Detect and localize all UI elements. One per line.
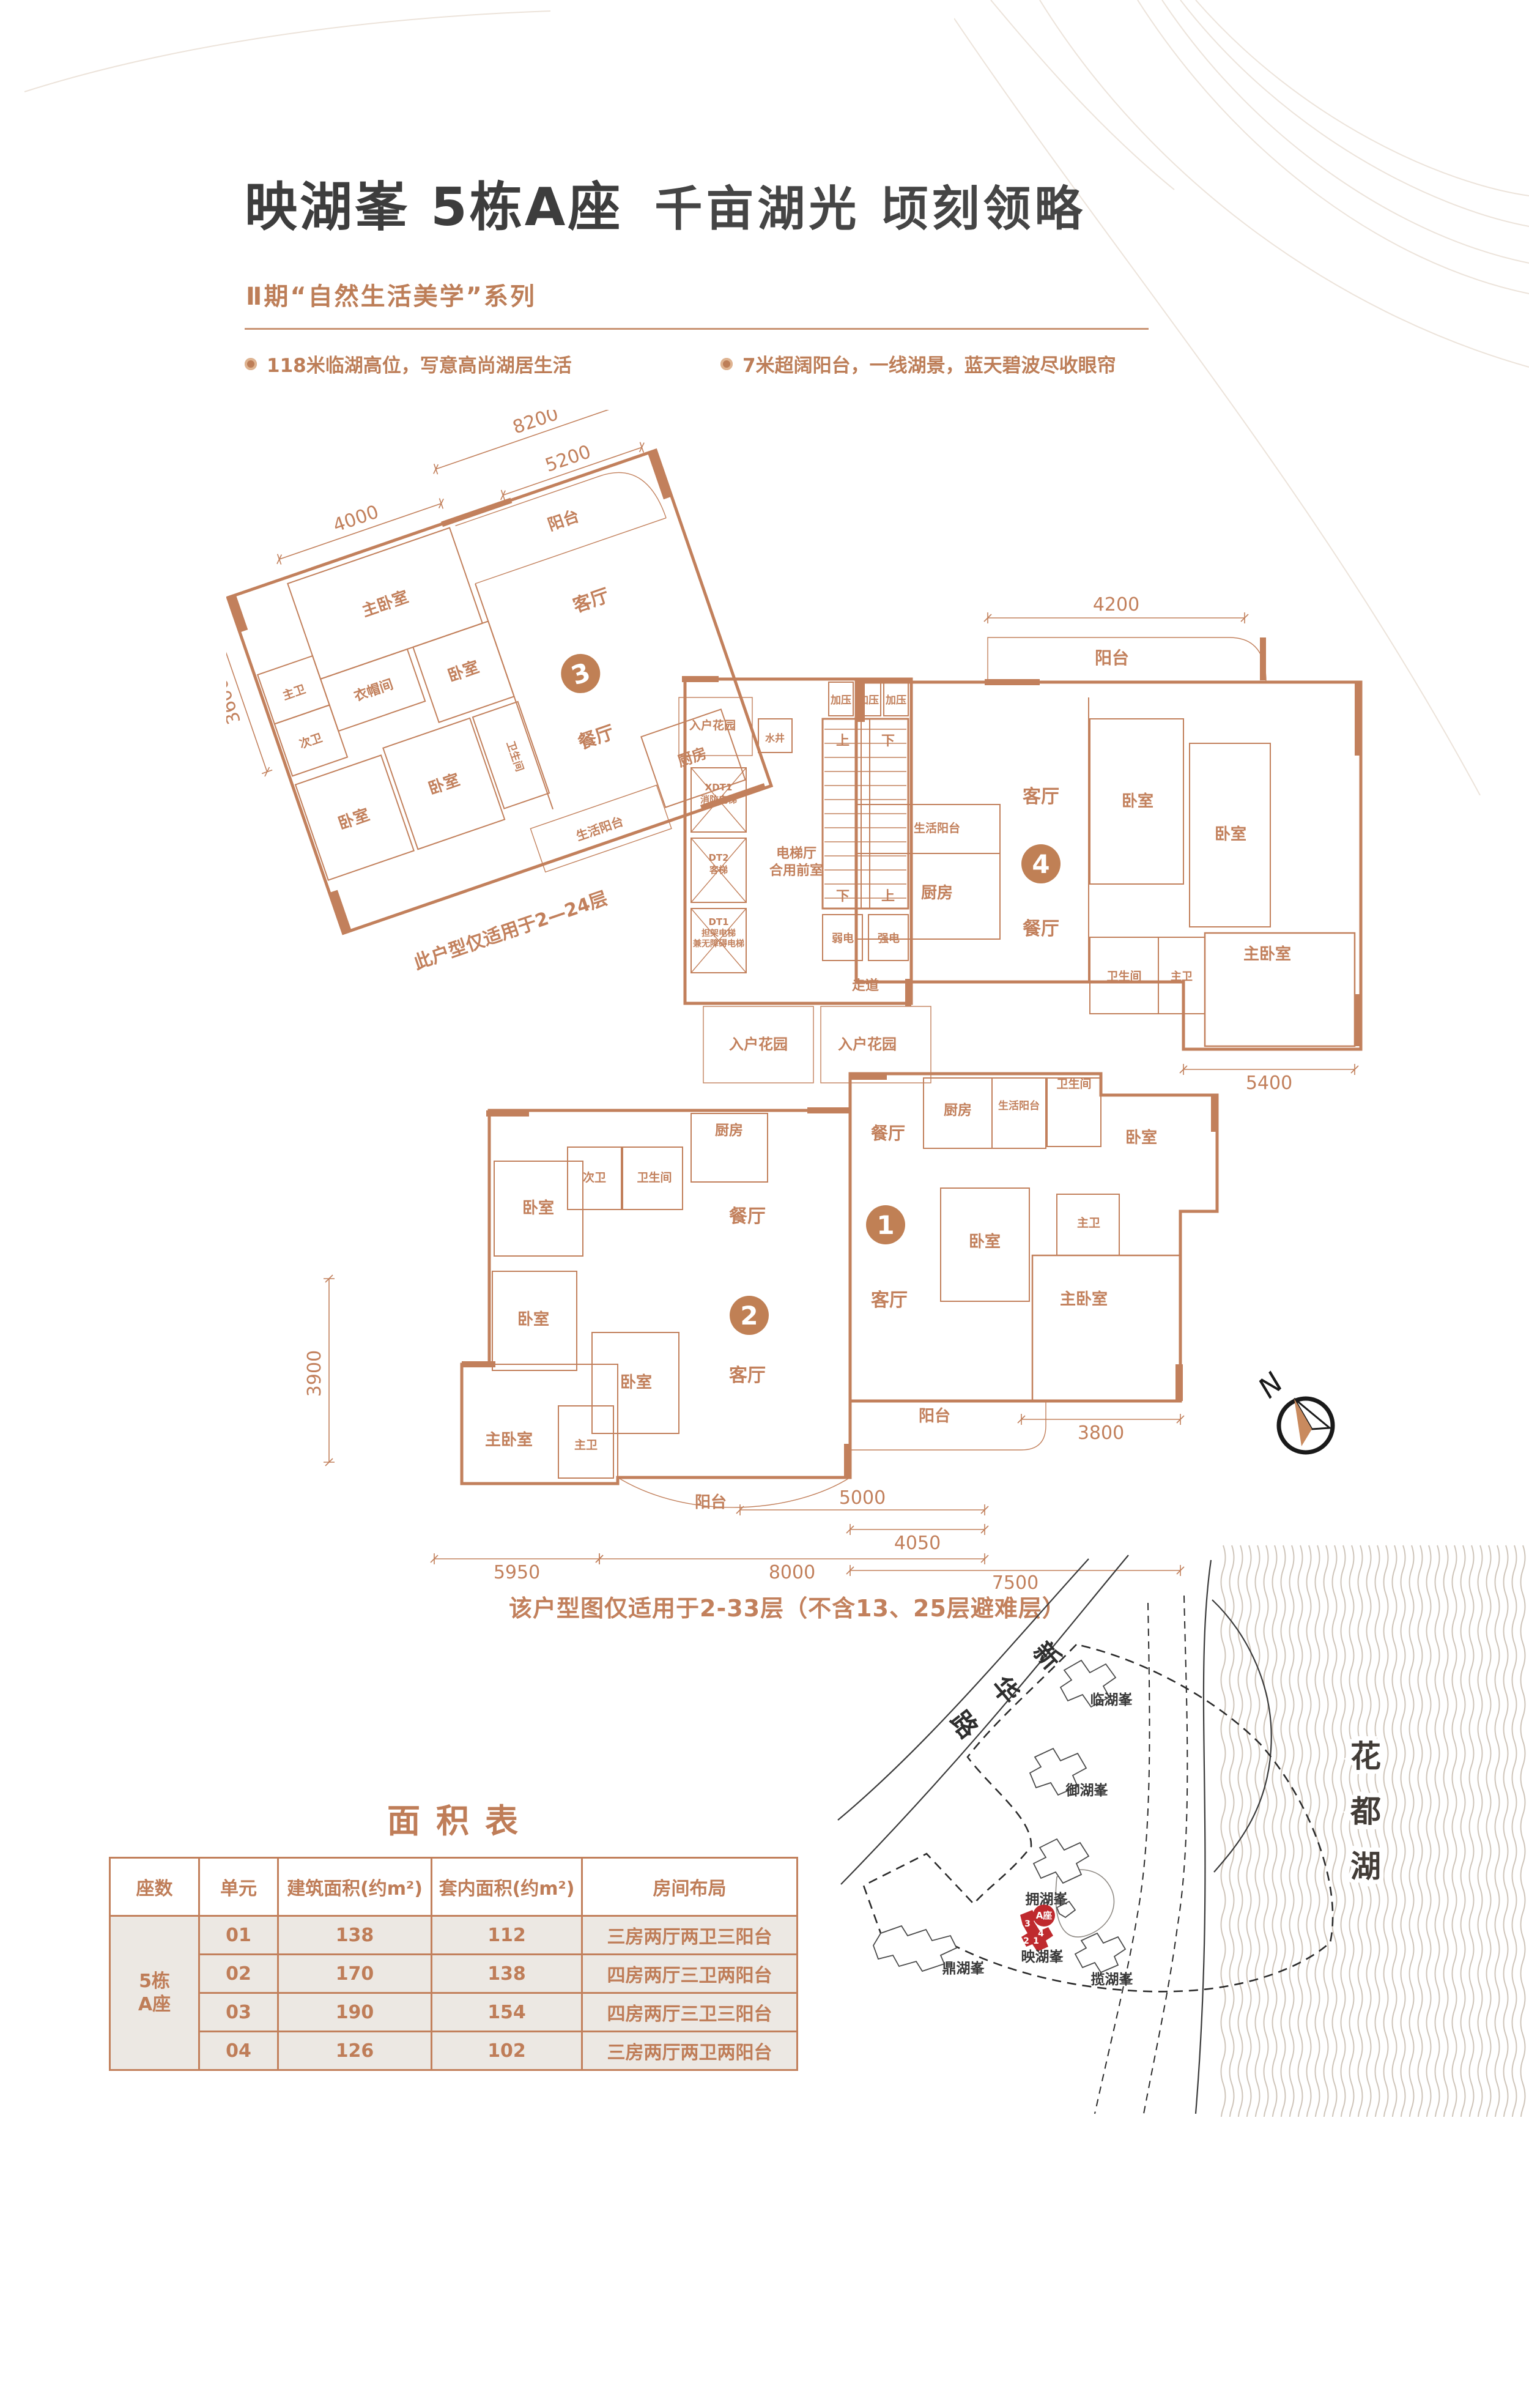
road-name-char: 路 [944,1705,984,1744]
table-row: 5栋 A座 01 138 112 三房两厅两卫三阳台 [110,1916,798,1955]
room-label: 主卫 [1077,1216,1100,1230]
dimension-label: 4000 [330,501,382,537]
estate-label: 鼎湖峯 [942,1961,985,1977]
layout-cell: 四房两厅三卫三阳台 [582,1993,798,2032]
room-label: 餐厅 [871,1123,905,1143]
col-header-layout: 房间布局 [582,1858,798,1916]
room-label: 担架电梯 [702,928,736,938]
room-label: 厨房 [921,884,953,902]
room-label: 客梯 [709,864,728,875]
page-title: 映湖峯 5栋A座千亩湖光 顷刻领略 [245,164,1086,240]
room-label: 客厅 [871,1290,908,1311]
area-table: 座数 单元 建筑面积(约m²) 套内面积(约m²) 房间布局 5栋 A座 01 … [109,1857,798,2071]
room-label: 入户花园 [838,1036,897,1053]
layout-cell: 三房两厅两卫两阳台 [582,2032,798,2070]
table-header-row: 座数 单元 建筑面积(约m²) 套内面积(约m²) 房间布局 [110,1858,798,1916]
feature-bullet-2: 7米超阔阳台，一线湖景，蓝天碧波尽收眼帘 [720,350,1116,377]
building-clusters [873,1660,1125,1972]
building-unit-number: 3 [1024,1919,1031,1929]
room-label: 主卫 [281,683,307,703]
layout-cell: 四房两厅三卫两阳台 [582,1955,798,1993]
room-label: 电梯厅 [776,845,816,861]
room-label: 入户花园 [729,1036,788,1053]
layout-cell: 三房两厅两卫三阳台 [582,1916,798,1955]
svg-text:A座: A座 [1036,1910,1053,1921]
room-label: 走道 [852,978,879,994]
building-cell: 5栋 A座 [110,1916,199,2070]
col-header-gross-area: 建筑面积(约m²) [278,1858,432,1916]
gross-cell: 126 [278,2032,432,2070]
bullet-dot-icon [720,358,733,370]
dimension-label: 3900 [304,1350,325,1397]
room-label: 卧室 [969,1232,1001,1251]
room-label: 厨房 [676,745,709,770]
room-label: 强电 [878,932,900,945]
room-label: 下 [836,889,850,904]
lake-name-char: 花 [1350,1739,1381,1774]
room-label: 主卧室 [360,587,411,621]
dimension-label: 5200 [542,441,594,477]
site-location-map: 3421 A座 新华路 临湖峯御湖峯拥湖峯映湖峯鼎湖峯揽湖峯 花都湖 [820,1542,1529,2117]
room-label: 加压 [857,694,879,707]
room-label: 餐厅 [1023,918,1059,940]
title-tagline: 千亩湖光 顷刻领略 [654,182,1086,237]
unit-number: 1 [876,1210,894,1240]
area-table-title: 面积表 [109,1794,796,1842]
inner-cell: 138 [432,1955,582,1993]
room-label: 次卫 [583,1170,606,1184]
col-header-inner-area: 套内面积(约m²) [432,1858,582,1916]
room-label: 主卫 [574,1438,598,1452]
room-label: 厨房 [944,1102,972,1118]
building-unit-number: 2 [1023,1936,1029,1946]
room-label: 客厅 [729,1365,766,1386]
dimension-label: 5400 [1246,1072,1292,1094]
series-subtitle: Ⅱ期“自然生活美学”系列 [246,277,536,312]
inner-cell: 112 [432,1916,582,1955]
inner-cell: 154 [432,1993,582,2032]
room-label: 生活阳台 [998,1099,1040,1112]
road-name-char: 新 [1027,1636,1067,1675]
unit-cell: 04 [199,2032,278,2070]
room-label: 主卧室 [1243,945,1291,964]
room-label: 阳台 [546,507,582,535]
room-label: 卧室 [522,1198,554,1217]
lake-name-char: 湖 [1350,1849,1381,1884]
room-label: 加压 [885,694,906,707]
bullet-dot-icon [245,358,257,370]
lake-name: 花都湖 [1350,1739,1381,1884]
room-label: 卫生间 [504,740,526,773]
room-label: 水井 [765,732,785,744]
room-label: 卫生间 [1056,1077,1091,1091]
estate-label: 御湖峯 [1065,1782,1109,1799]
room-label: 阳台 [695,1493,727,1512]
dimension-label: 5000 [839,1487,886,1509]
room-label: 卧室 [517,1310,549,1329]
room-label: 卧室 [620,1373,652,1392]
room-label: 卧室 [1125,1128,1157,1147]
room-label: 合用前室 [769,863,823,879]
lake-waves [1221,1545,1525,2117]
room-label: 卧室 [426,770,462,798]
lake-shoreline [1196,1560,1211,2114]
room-label: 卧室 [336,805,372,833]
lake-name-char: 都 [1350,1794,1381,1829]
room-label: 阳台 [919,1407,950,1425]
room-label: 上 [836,734,850,749]
room-label: 入户花园 [689,718,736,732]
dimension-label: 3800 [1078,1422,1124,1444]
unit-cell: 03 [199,1993,278,2032]
room-label: 卫生间 [1106,969,1141,983]
room-label: 卧室 [445,657,481,685]
estate-label: 拥湖峯 [1026,1892,1068,1908]
title-main: 映湖峯 5栋A座 [245,177,623,238]
decorative-curve-topleft [0,0,550,110]
room-label: 客厅 [1023,786,1059,808]
room-label: 加压 [830,694,851,707]
room-label: 厨房 [715,1122,743,1139]
room-label: 次卫 [297,730,324,751]
col-header-block: 座数 [110,1858,199,1916]
room-label: DT1 [708,916,728,927]
room-label: 客厅 [571,585,612,617]
col-header-unit: 单元 [199,1858,278,1916]
unit-number: 4 [1032,849,1050,879]
dimension-label: 8000 [769,1562,815,1583]
dimension-label: 4200 [1093,594,1139,615]
room-label: 下 [881,734,895,749]
table-row: 02 170 138 四房两厅三卫两阳台 [110,1955,798,1993]
room-label: 消防电梯 [700,794,737,805]
room-label: 衣帽间 [352,677,395,705]
unit-cell: 01 [199,1916,278,1955]
brochure-page: 映湖峯 5栋A座千亩湖光 顷刻领略 Ⅱ期“自然生活美学”系列 118米临湖高位，… [0,0,1529,2408]
dimension-label: 5950 [494,1562,540,1583]
room-label: 卧室 [1122,792,1153,811]
room-label: 阳台 [1095,648,1129,668]
estate-label: 临湖峯 [1090,1692,1133,1708]
road-xinhua [838,1555,1128,1884]
room-label: 卫生间 [637,1170,672,1184]
unit4-plan [856,637,1361,1049]
room-label: XDT1 [705,782,733,793]
road-name-char: 华 [986,1671,1026,1710]
highlighted-building-5A: 3421 A座 [1020,1904,1055,1952]
room-label: 弱电 [832,932,854,945]
gross-cell: 170 [278,1955,432,1993]
feature-bullet-1: 118米临湖高位，写意高尚湖居生活 [245,350,572,377]
gross-cell: 190 [278,1993,432,2032]
inner-cell: 102 [432,2032,582,2070]
floorplan-drawing: 主卧室阳台衣帽间主卫次卫卧室客厅餐厅卧室卧室卫生间厨房生活阳台 36004000… [226,410,1401,1591]
room-label: DT2 [708,852,728,863]
unit-number: 2 [740,1301,758,1331]
room-label: 主卧室 [1060,1290,1108,1309]
north-compass: N [1254,1364,1364,1474]
table-row: 03 190 154 四房两厅三卫三阳台 [110,1993,798,2032]
divider-rule [245,328,1149,330]
building-unit-number: 1 [1033,1936,1039,1946]
bullet-text: 118米临湖高位，写意高尚湖居生活 [267,350,572,377]
estate-label: 揽湖峯 [1091,1972,1134,1988]
room-label: 卧室 [1215,825,1246,844]
room-label: 生活阳台 [914,821,960,835]
bullet-text: 7米超阔阳台，一线湖景，蓝天碧波尽收眼帘 [742,350,1116,377]
gross-cell: 138 [278,1916,432,1955]
room-label: 餐厅 [576,722,617,754]
room-label: 餐厅 [729,1206,766,1227]
room-label: 上 [881,889,895,904]
room-label: 兼无障碍电梯 [693,938,744,949]
table-row: 04 126 102 三房两厅两卫两阳台 [110,2032,798,2070]
room-label: 主卫 [1171,970,1193,983]
unit-cell: 02 [199,1955,278,1993]
estate-label: 映湖峯 [1021,1949,1064,1965]
compass-n-label: N [1254,1366,1289,1405]
path-dashed-2 [1144,1596,1187,2114]
room-label: 主卧室 [485,1430,533,1449]
